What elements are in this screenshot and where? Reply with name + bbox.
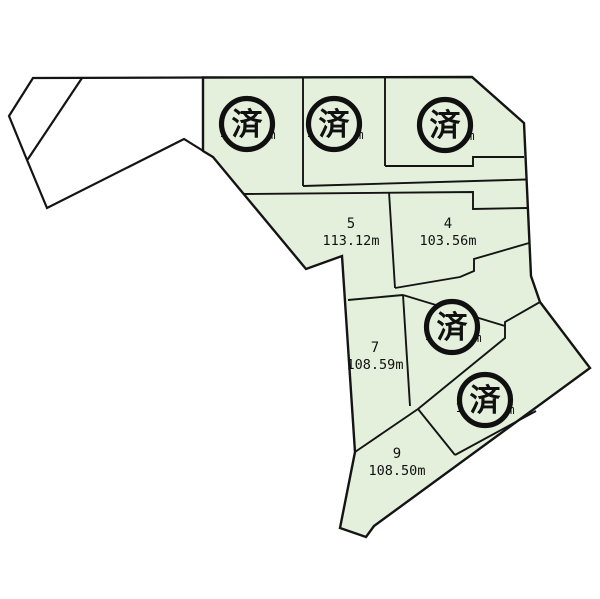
sold-stamp-lot-2: 1 m 済 bbox=[306, 99, 363, 150]
sold-stamp-lot-1: 1 m 済 bbox=[219, 99, 275, 150]
lot-5-number: 5 bbox=[347, 216, 355, 232]
lot-5-area: 113.12m bbox=[323, 233, 380, 249]
sold-stamp-lot-8: 1 m 済 bbox=[455, 375, 514, 426]
lot-7-area: 108.59m bbox=[347, 357, 404, 373]
lot-7-number: 7 bbox=[371, 340, 379, 356]
lot-4-area: 103.56m bbox=[420, 233, 477, 249]
boundary-line-west-strip-inner bbox=[28, 78, 82, 159]
sold-stamp-kanji: 済 bbox=[437, 310, 469, 346]
sold-stamp-lot-6: 1 m 済 bbox=[424, 302, 481, 353]
sold-stamp-kanji: 済 bbox=[319, 107, 351, 143]
boundary-line-top-edge bbox=[33, 78, 203, 79]
lot-4-number: 4 bbox=[444, 216, 452, 232]
sold-stamp-lot-3: m 済 bbox=[420, 100, 475, 151]
sold-stamp-kanji: 済 bbox=[430, 108, 462, 144]
lot-9-area: 108.50m bbox=[369, 463, 426, 479]
sold-stamp-kanji: 済 bbox=[470, 383, 502, 419]
lot-9-number: 9 bbox=[393, 446, 401, 462]
sold-stamp-kanji: 済 bbox=[232, 107, 264, 143]
plat-map-page: 5 113.12m 4 103.56m 7 108.59m 9 108.50m … bbox=[0, 0, 600, 599]
plat-map-svg: 5 113.12m 4 103.56m 7 108.59m 9 108.50m … bbox=[0, 0, 600, 599]
